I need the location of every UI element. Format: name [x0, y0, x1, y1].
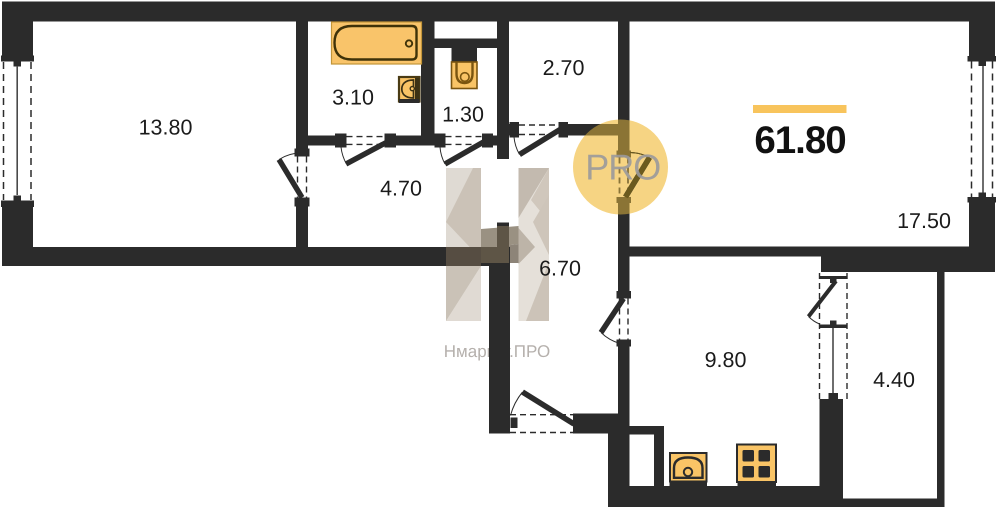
- svg-text:1.30: 1.30: [442, 103, 484, 127]
- svg-text:13.80: 13.80: [139, 116, 193, 140]
- svg-text:4.70: 4.70: [380, 177, 422, 201]
- svg-text:PRO: PRO: [585, 147, 660, 188]
- svg-text:6.70: 6.70: [539, 257, 581, 281]
- svg-text:9.80: 9.80: [705, 348, 747, 372]
- svg-text:17.50: 17.50: [897, 209, 951, 233]
- svg-text:4.40: 4.40: [873, 368, 915, 392]
- svg-text:2.70: 2.70: [543, 56, 585, 80]
- svg-text:61.80: 61.80: [754, 119, 845, 162]
- svg-text:3.10: 3.10: [332, 86, 374, 110]
